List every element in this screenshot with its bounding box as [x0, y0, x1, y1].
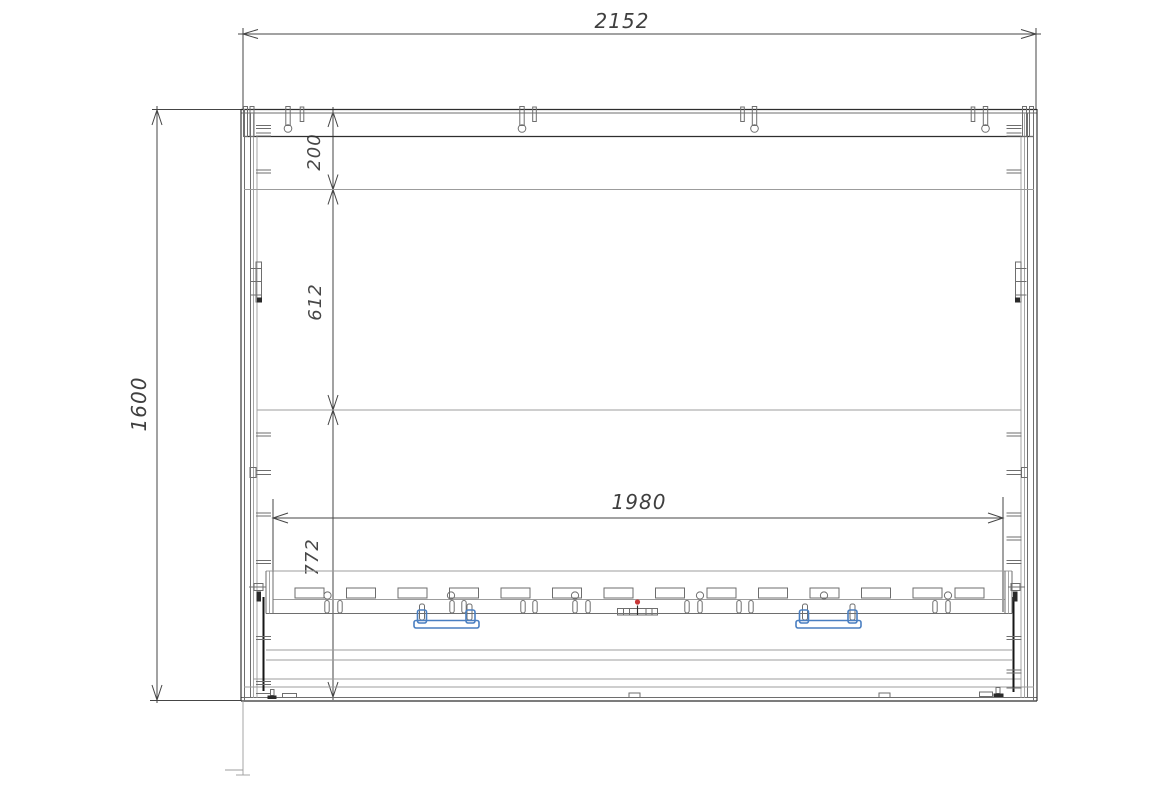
dimension-chain: 200 612 772	[302, 107, 338, 700]
leg-bracket-right	[796, 610, 861, 628]
mattress-slats	[295, 588, 984, 598]
dim-top-offset-label: 200	[304, 133, 325, 170]
hinge-left	[251, 262, 263, 303]
right-side-panel	[1021, 109, 1037, 701]
dim-overall-width-label: 2152	[595, 9, 650, 33]
cabinet-frame	[241, 110, 1037, 702]
latch-indicator-red	[635, 599, 640, 604]
center-latch	[618, 599, 658, 615]
top-dowel-pins	[244, 107, 1034, 137]
dim-upper-section-label: 612	[305, 283, 326, 320]
interior-lines	[244, 190, 1034, 688]
dim-overall-height-label: 1600	[127, 377, 151, 432]
dimension-inner-width: 1980	[273, 490, 1003, 612]
dimension-overall-height: 1600	[127, 106, 241, 703]
dimension-overall-width: 2152	[238, 9, 1041, 109]
technical-drawing: 2152 1600 200 612 772 1980	[0, 0, 1167, 810]
reference-extension	[225, 701, 250, 775]
dim-inner-width-label: 1980	[612, 490, 667, 514]
left-side-panel	[241, 109, 257, 701]
dim-lower-section-label: 772	[302, 538, 323, 575]
pivot-right	[1008, 584, 1025, 602]
